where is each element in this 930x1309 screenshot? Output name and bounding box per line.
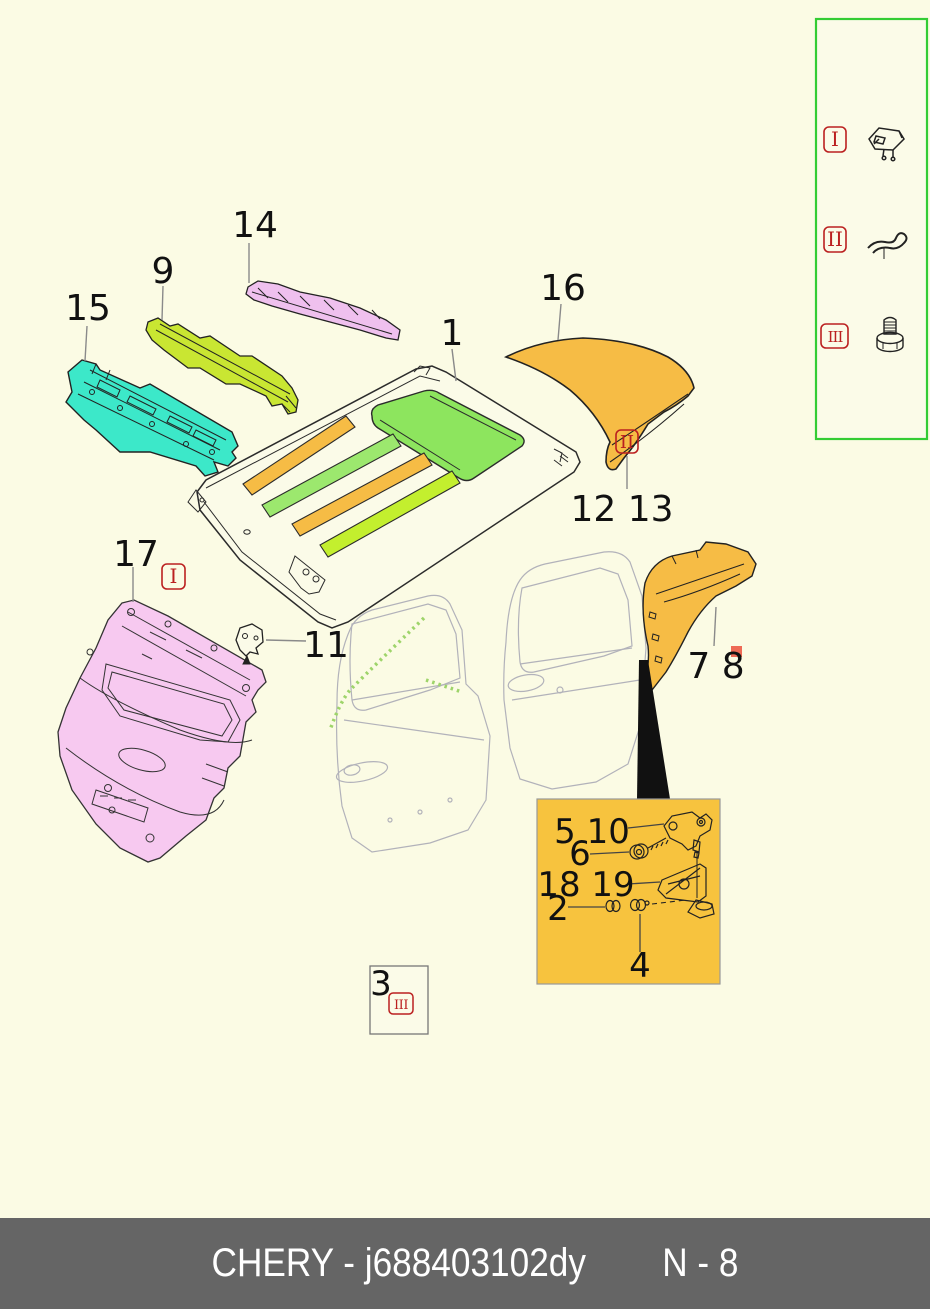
badge-I-near-17: I bbox=[162, 564, 185, 589]
rear-door-outline bbox=[337, 595, 490, 852]
callout-2[interactable]: 2 bbox=[547, 889, 569, 929]
callout-5-10[interactable]: 5 10 bbox=[554, 812, 630, 852]
part-rear-shelf-panel[interactable] bbox=[66, 360, 238, 476]
footer-bar: CHERY - j688403102dy N - 8 bbox=[0, 1218, 930, 1309]
part-roof-panel[interactable] bbox=[188, 366, 580, 628]
callout-4[interactable]: 4 bbox=[629, 946, 651, 986]
callout-17[interactable]: 17 bbox=[113, 534, 159, 575]
part-roof-crossmember[interactable] bbox=[246, 281, 400, 340]
badge-iii-text: III bbox=[394, 998, 408, 1013]
legend-panel: I II III bbox=[816, 19, 927, 439]
part-tailgate[interactable] bbox=[58, 600, 266, 862]
callout-9[interactable]: 9 bbox=[152, 251, 175, 292]
badge-i-text: I bbox=[170, 564, 178, 588]
legend-numeral-2: II bbox=[827, 227, 843, 251]
callout-1[interactable]: 1 bbox=[441, 313, 464, 354]
diagram-page: I II III bbox=[0, 0, 930, 1309]
callout-11[interactable]: 11 bbox=[303, 625, 349, 666]
callout-14[interactable]: 14 bbox=[232, 205, 278, 246]
callout-7-8[interactable]: 7 8 bbox=[687, 646, 744, 687]
footer-page-ref: N - 8 bbox=[663, 1241, 739, 1286]
callout-15[interactable]: 15 bbox=[65, 288, 111, 329]
badge-ii-text: II bbox=[620, 432, 634, 453]
footer-part-code: CHERY - j688403102dy bbox=[211, 1241, 585, 1286]
legend-numeral-1: I bbox=[831, 127, 839, 151]
fastener-ref-box-3: 3 III bbox=[370, 964, 428, 1034]
callout-16[interactable]: 16 bbox=[540, 268, 586, 309]
parts-diagram: I II III bbox=[0, 0, 930, 1309]
hinge-detail-inset: 5 10 6 18 19 2 4 bbox=[537, 799, 720, 986]
legend-numeral-3: III bbox=[828, 328, 844, 346]
callout-12-13[interactable]: 12 13 bbox=[570, 489, 673, 530]
